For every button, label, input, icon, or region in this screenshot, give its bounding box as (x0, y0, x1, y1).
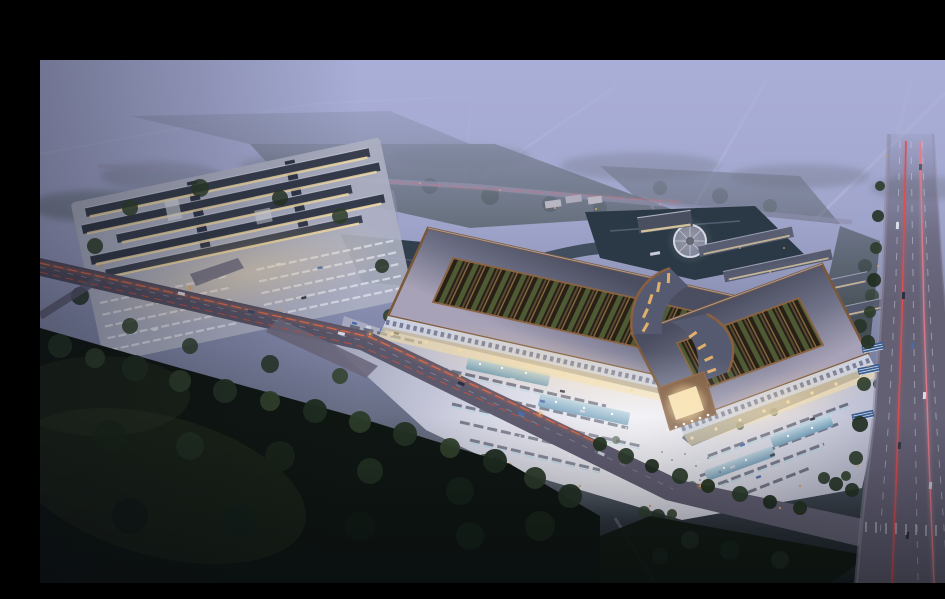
letterbox-top (40, 16, 945, 60)
architectural-rendering (40, 16, 945, 583)
rendering-canvas (40, 16, 945, 583)
left-vignette (40, 60, 360, 583)
